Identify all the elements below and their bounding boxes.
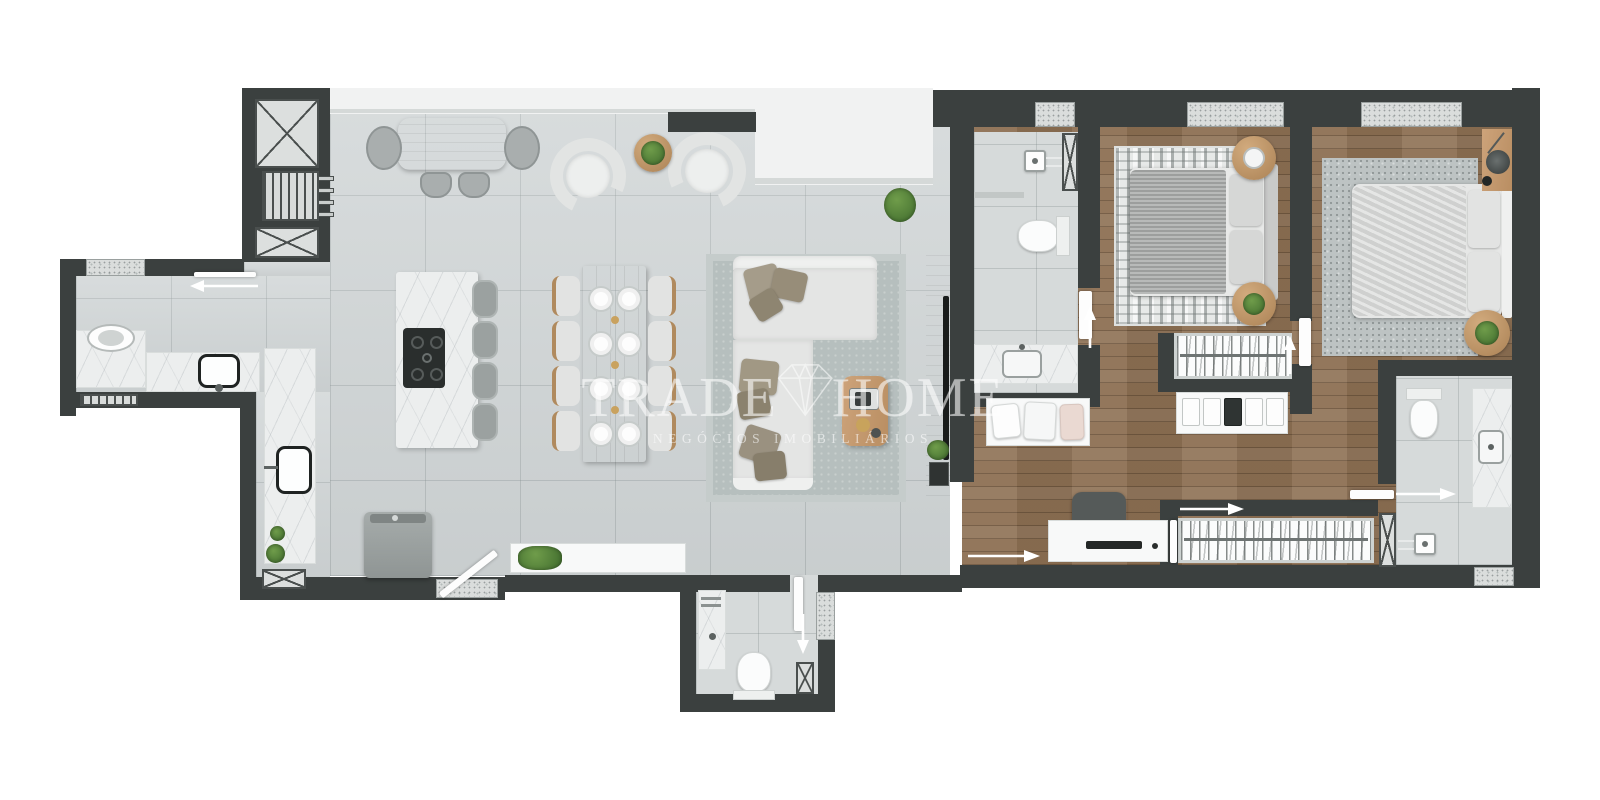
- bed1-pillow: [1230, 230, 1262, 284]
- balcony-chair: [504, 126, 540, 170]
- entry-arrow: [190, 280, 262, 292]
- dining-chair: [552, 411, 580, 451]
- duct-shaft-lavabo: [796, 662, 814, 694]
- stair-run: [262, 171, 319, 221]
- toilet-1-tank: [1056, 216, 1070, 256]
- faucet: [709, 633, 716, 640]
- plate: [616, 331, 642, 357]
- table-decor: [611, 316, 619, 324]
- bar-stool: [472, 362, 498, 400]
- plate: [588, 286, 614, 312]
- bar-stool: [472, 403, 498, 441]
- burner-center: [422, 353, 432, 363]
- corridor-arrow: [968, 550, 1040, 562]
- burner: [430, 336, 443, 349]
- faucet: [264, 466, 278, 469]
- entry-door-leaf: [194, 272, 256, 277]
- console-frame: [929, 462, 949, 486]
- window-sill-service-top: [86, 259, 145, 276]
- shower-dot: [1422, 541, 1428, 547]
- lavabo-door-arrow: [797, 614, 809, 654]
- wall-closet1-stub: [1158, 333, 1174, 392]
- closet2-rod: [1184, 538, 1368, 541]
- stair-handrail: [318, 176, 334, 181]
- wall-service-strip-left: [240, 408, 256, 600]
- linen-pillow: [1023, 401, 1057, 441]
- bath-shelf: [974, 192, 1024, 198]
- window-sill-lavabo: [816, 592, 835, 640]
- folded-shirt: [1245, 398, 1263, 426]
- towel-bar: [701, 604, 721, 607]
- exterior-wall-bottom-right: [960, 565, 1540, 588]
- watermark-title-left: TRADE: [581, 370, 778, 426]
- wall-bathroom2-left-upper: [1378, 374, 1396, 484]
- bar-stool: [472, 321, 498, 359]
- window-sill-bathroom-1: [1035, 102, 1075, 127]
- closet2-door-leaf: [1170, 520, 1177, 563]
- window-louver-service: [80, 394, 138, 406]
- dining-chair: [552, 321, 580, 361]
- lavabo-toilet-bowl: [737, 652, 771, 692]
- sofa-pillow: [753, 450, 788, 481]
- keyboard: [1086, 541, 1142, 549]
- shower-arm: [1046, 165, 1062, 167]
- plate: [588, 331, 614, 357]
- shower-dot: [1032, 158, 1038, 164]
- bathroom2-door-leaf: [1350, 490, 1394, 499]
- diamond-outline-icon: [768, 360, 842, 420]
- exterior-wall-right: [1512, 88, 1540, 588]
- elevator-1: [255, 99, 319, 168]
- bathroom1-door-arrow: [1084, 306, 1096, 348]
- dining-chair: [552, 276, 580, 316]
- nightstand-plant: [1243, 293, 1265, 315]
- wall-living-bottom-right: [832, 575, 962, 592]
- vanity-1-sink: [1002, 350, 1042, 378]
- bed1-headboard: [1262, 164, 1278, 300]
- lavabo-vanity: [698, 590, 726, 670]
- shower-arm: [1398, 540, 1414, 542]
- living-plant: [884, 188, 916, 222]
- duct-shaft-bathroom-2: [1379, 513, 1396, 567]
- washer-panel: [370, 514, 426, 523]
- watermark-title-right: HOME: [832, 370, 1005, 426]
- linen-pillow: [1059, 404, 1084, 441]
- bedroom2-door-arrow: [1284, 336, 1296, 374]
- window-sill-bedroom-1: [1187, 102, 1284, 127]
- wall-closet1-divider: [1158, 379, 1312, 392]
- window-sill-bedroom-2: [1361, 102, 1462, 127]
- duct-shaft-service: [262, 569, 306, 589]
- table-lamp: [1486, 150, 1510, 174]
- closet1-rod: [1180, 354, 1286, 357]
- closet2-arrow: [1180, 503, 1244, 515]
- bed2-pillow: [1468, 190, 1500, 248]
- plate: [616, 286, 642, 312]
- bathroom2-door-arrow: [1396, 488, 1456, 500]
- dining-chair: [648, 321, 676, 361]
- dining-chair: [552, 366, 580, 406]
- balcony-table: [398, 118, 506, 170]
- folded-shirt: [1203, 398, 1221, 426]
- dining-chair: [648, 276, 676, 316]
- stair-handrail: [318, 212, 334, 217]
- lavabo-toilet-tank: [733, 690, 775, 700]
- burner: [411, 336, 424, 349]
- sofa-armrest: [733, 478, 813, 490]
- terrace-sill: [755, 178, 933, 184]
- kitchen-sink: [276, 446, 312, 494]
- toilet-1-bowl: [1018, 220, 1058, 252]
- bed2-headboard: [1502, 186, 1512, 318]
- wall-bedroom1-bedroom2-upper: [1290, 100, 1312, 321]
- counter-plant: [270, 526, 285, 541]
- towel-bar: [701, 597, 721, 600]
- washer-knob: [392, 515, 398, 521]
- elevator-2: [255, 227, 319, 258]
- nightstand-plant: [1475, 321, 1499, 345]
- window-sill-bathroom-2-bottom: [1474, 567, 1514, 586]
- wall-lavabo-left: [680, 575, 696, 712]
- faucet: [1019, 344, 1025, 350]
- shower-arm: [1398, 548, 1414, 550]
- folded-shirt: [1182, 398, 1200, 426]
- mouse: [1152, 543, 1158, 549]
- balcony-chair: [366, 126, 402, 170]
- folded-shirt: [1266, 398, 1284, 426]
- faucet: [1488, 444, 1494, 450]
- sideboard-plant: [518, 546, 562, 570]
- floor-plan: TRADE HOME NEGÓCIOS IMOBILIÁRIOS: [0, 0, 1600, 800]
- wall-living-bottom-left: [505, 575, 680, 592]
- watermark-subtitle: NEGÓCIOS IMOBILIÁRIOS: [581, 431, 1005, 447]
- terrace-floor: [755, 88, 933, 185]
- toilet-2-tank: [1406, 388, 1442, 400]
- bar-stool: [472, 280, 498, 318]
- faucet: [215, 384, 223, 392]
- decor-ball: [1482, 176, 1492, 186]
- service-sink-1: [198, 354, 240, 388]
- balcony-plant: [641, 141, 665, 165]
- bed2-pillow: [1468, 252, 1500, 312]
- bed1-duvet: [1130, 170, 1226, 294]
- balcony-chair: [420, 172, 452, 198]
- stair-handrail: [318, 200, 334, 205]
- balcony-chair: [458, 172, 490, 198]
- laundry-tub-basin: [98, 330, 124, 346]
- stair-handrail: [318, 188, 334, 193]
- burner: [411, 368, 424, 381]
- bed1-pillow: [1230, 174, 1262, 226]
- shower-arm: [1046, 157, 1062, 159]
- burner: [430, 368, 443, 381]
- bedroom2-door-leaf: [1299, 318, 1311, 366]
- watermark-title: TRADE HOME: [581, 368, 1005, 428]
- bed2-duvet: [1352, 186, 1466, 316]
- folded-shirt: [1224, 398, 1242, 426]
- nightstand-bowl: [1243, 147, 1265, 169]
- duct-shaft-bathroom-1: [1062, 133, 1078, 191]
- wall-bathroom2-top: [1378, 360, 1512, 376]
- wall-bathroom1-bedroom1-upper: [1078, 127, 1100, 288]
- toilet-2-bowl: [1410, 400, 1438, 438]
- watermark: TRADE HOME NEGÓCIOS IMOBILIÁRIOS: [581, 368, 1005, 447]
- counter-plant: [266, 544, 285, 563]
